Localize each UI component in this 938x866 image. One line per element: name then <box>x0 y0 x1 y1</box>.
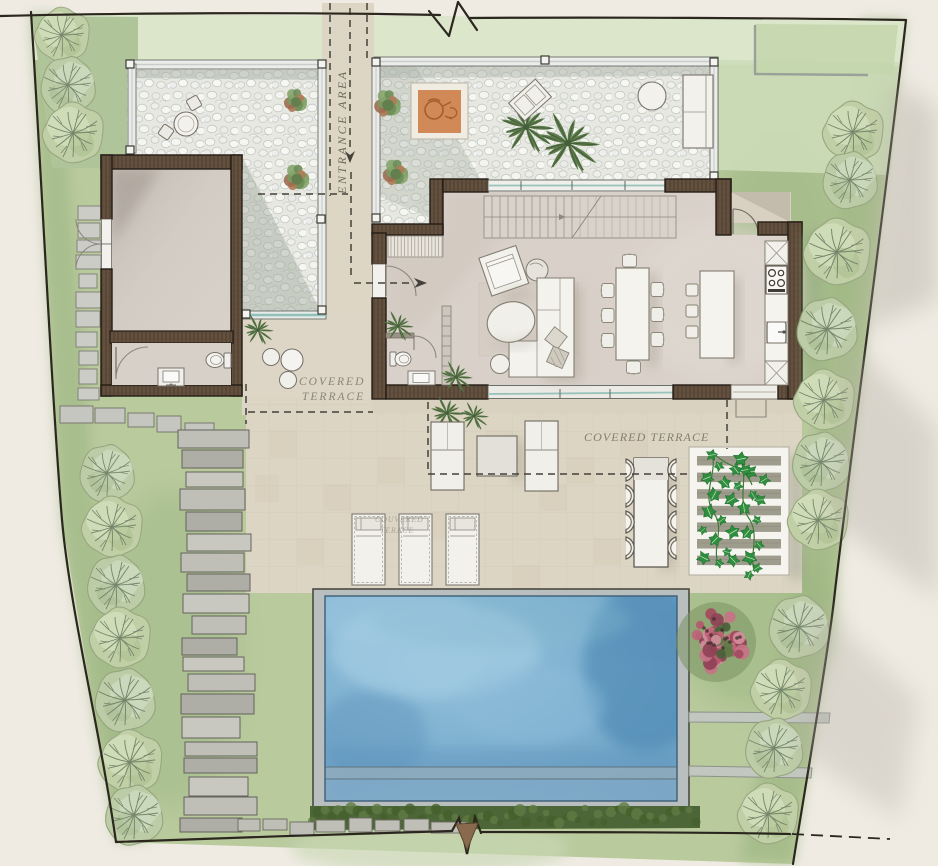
svg-text:COVERED TERRACE: COVERED TERRACE <box>584 430 709 444</box>
svg-text:TERRACE: TERRACE <box>302 391 365 403</box>
svg-text:TERACE: TERACE <box>380 526 414 535</box>
svg-text:COUVERED: COUVERED <box>375 515 424 524</box>
svg-text:COVERED: COVERED <box>299 376 365 388</box>
svg-text:ENTRANCE AREA: ENTRANCE AREA <box>335 69 349 195</box>
